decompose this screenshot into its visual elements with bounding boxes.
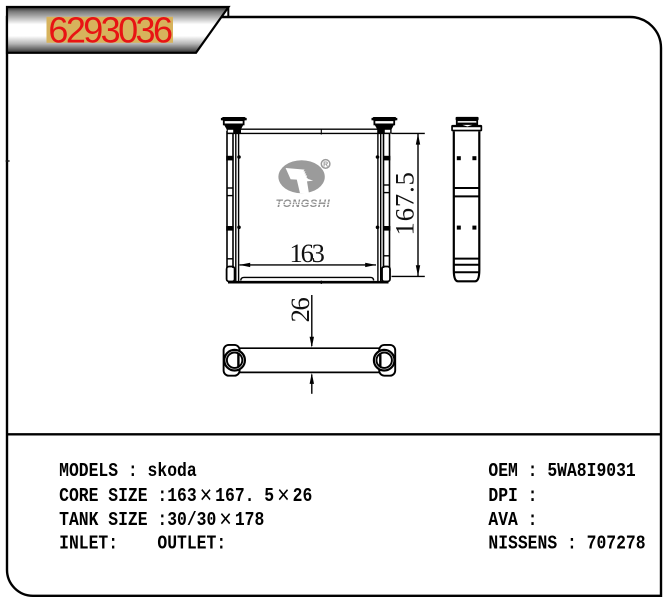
- svg-text:DPI :: DPI :: [488, 486, 537, 508]
- svg-text:OEM : 5WA8I9031: OEM : 5WA8I9031: [488, 461, 636, 483]
- svg-text:TONGSHI: TONGSHI: [276, 198, 331, 210]
- svg-text:CORE SIZE :163×167. 5×26: CORE SIZE :163×167. 5×26: [59, 482, 312, 510]
- svg-text:NISSENS : 707278: NISSENS : 707278: [488, 533, 645, 555]
- svg-text:26: 26: [285, 297, 315, 322]
- svg-text:6293036: 6293036: [48, 9, 173, 50]
- svg-text:163: 163: [290, 238, 325, 268]
- svg-text:AVA :: AVA :: [488, 510, 537, 532]
- svg-text:MODELS : skoda: MODELS : skoda: [59, 461, 197, 483]
- svg-text:TANK SIZE :30/30×178: TANK SIZE :30/30×178: [59, 507, 264, 535]
- svg-text:167.5: 167.5: [389, 172, 419, 235]
- svg-text:R: R: [323, 162, 328, 169]
- svg-text:INLET: OUTLET:: INLET: OUTLET:: [59, 533, 226, 555]
